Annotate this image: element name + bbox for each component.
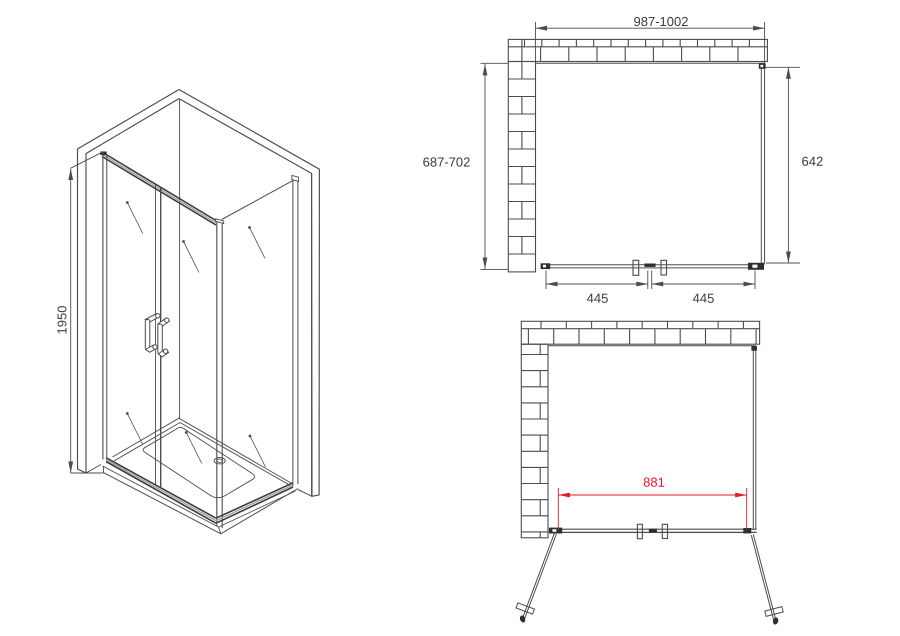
svg-text:1950: 1950: [55, 306, 70, 335]
svg-text:445: 445: [693, 291, 715, 306]
svg-text:987-1002: 987-1002: [634, 14, 689, 29]
svg-text:445: 445: [587, 291, 609, 306]
svg-text:642: 642: [802, 154, 824, 169]
svg-text:881: 881: [643, 475, 665, 490]
svg-text:687-702: 687-702: [423, 154, 471, 169]
